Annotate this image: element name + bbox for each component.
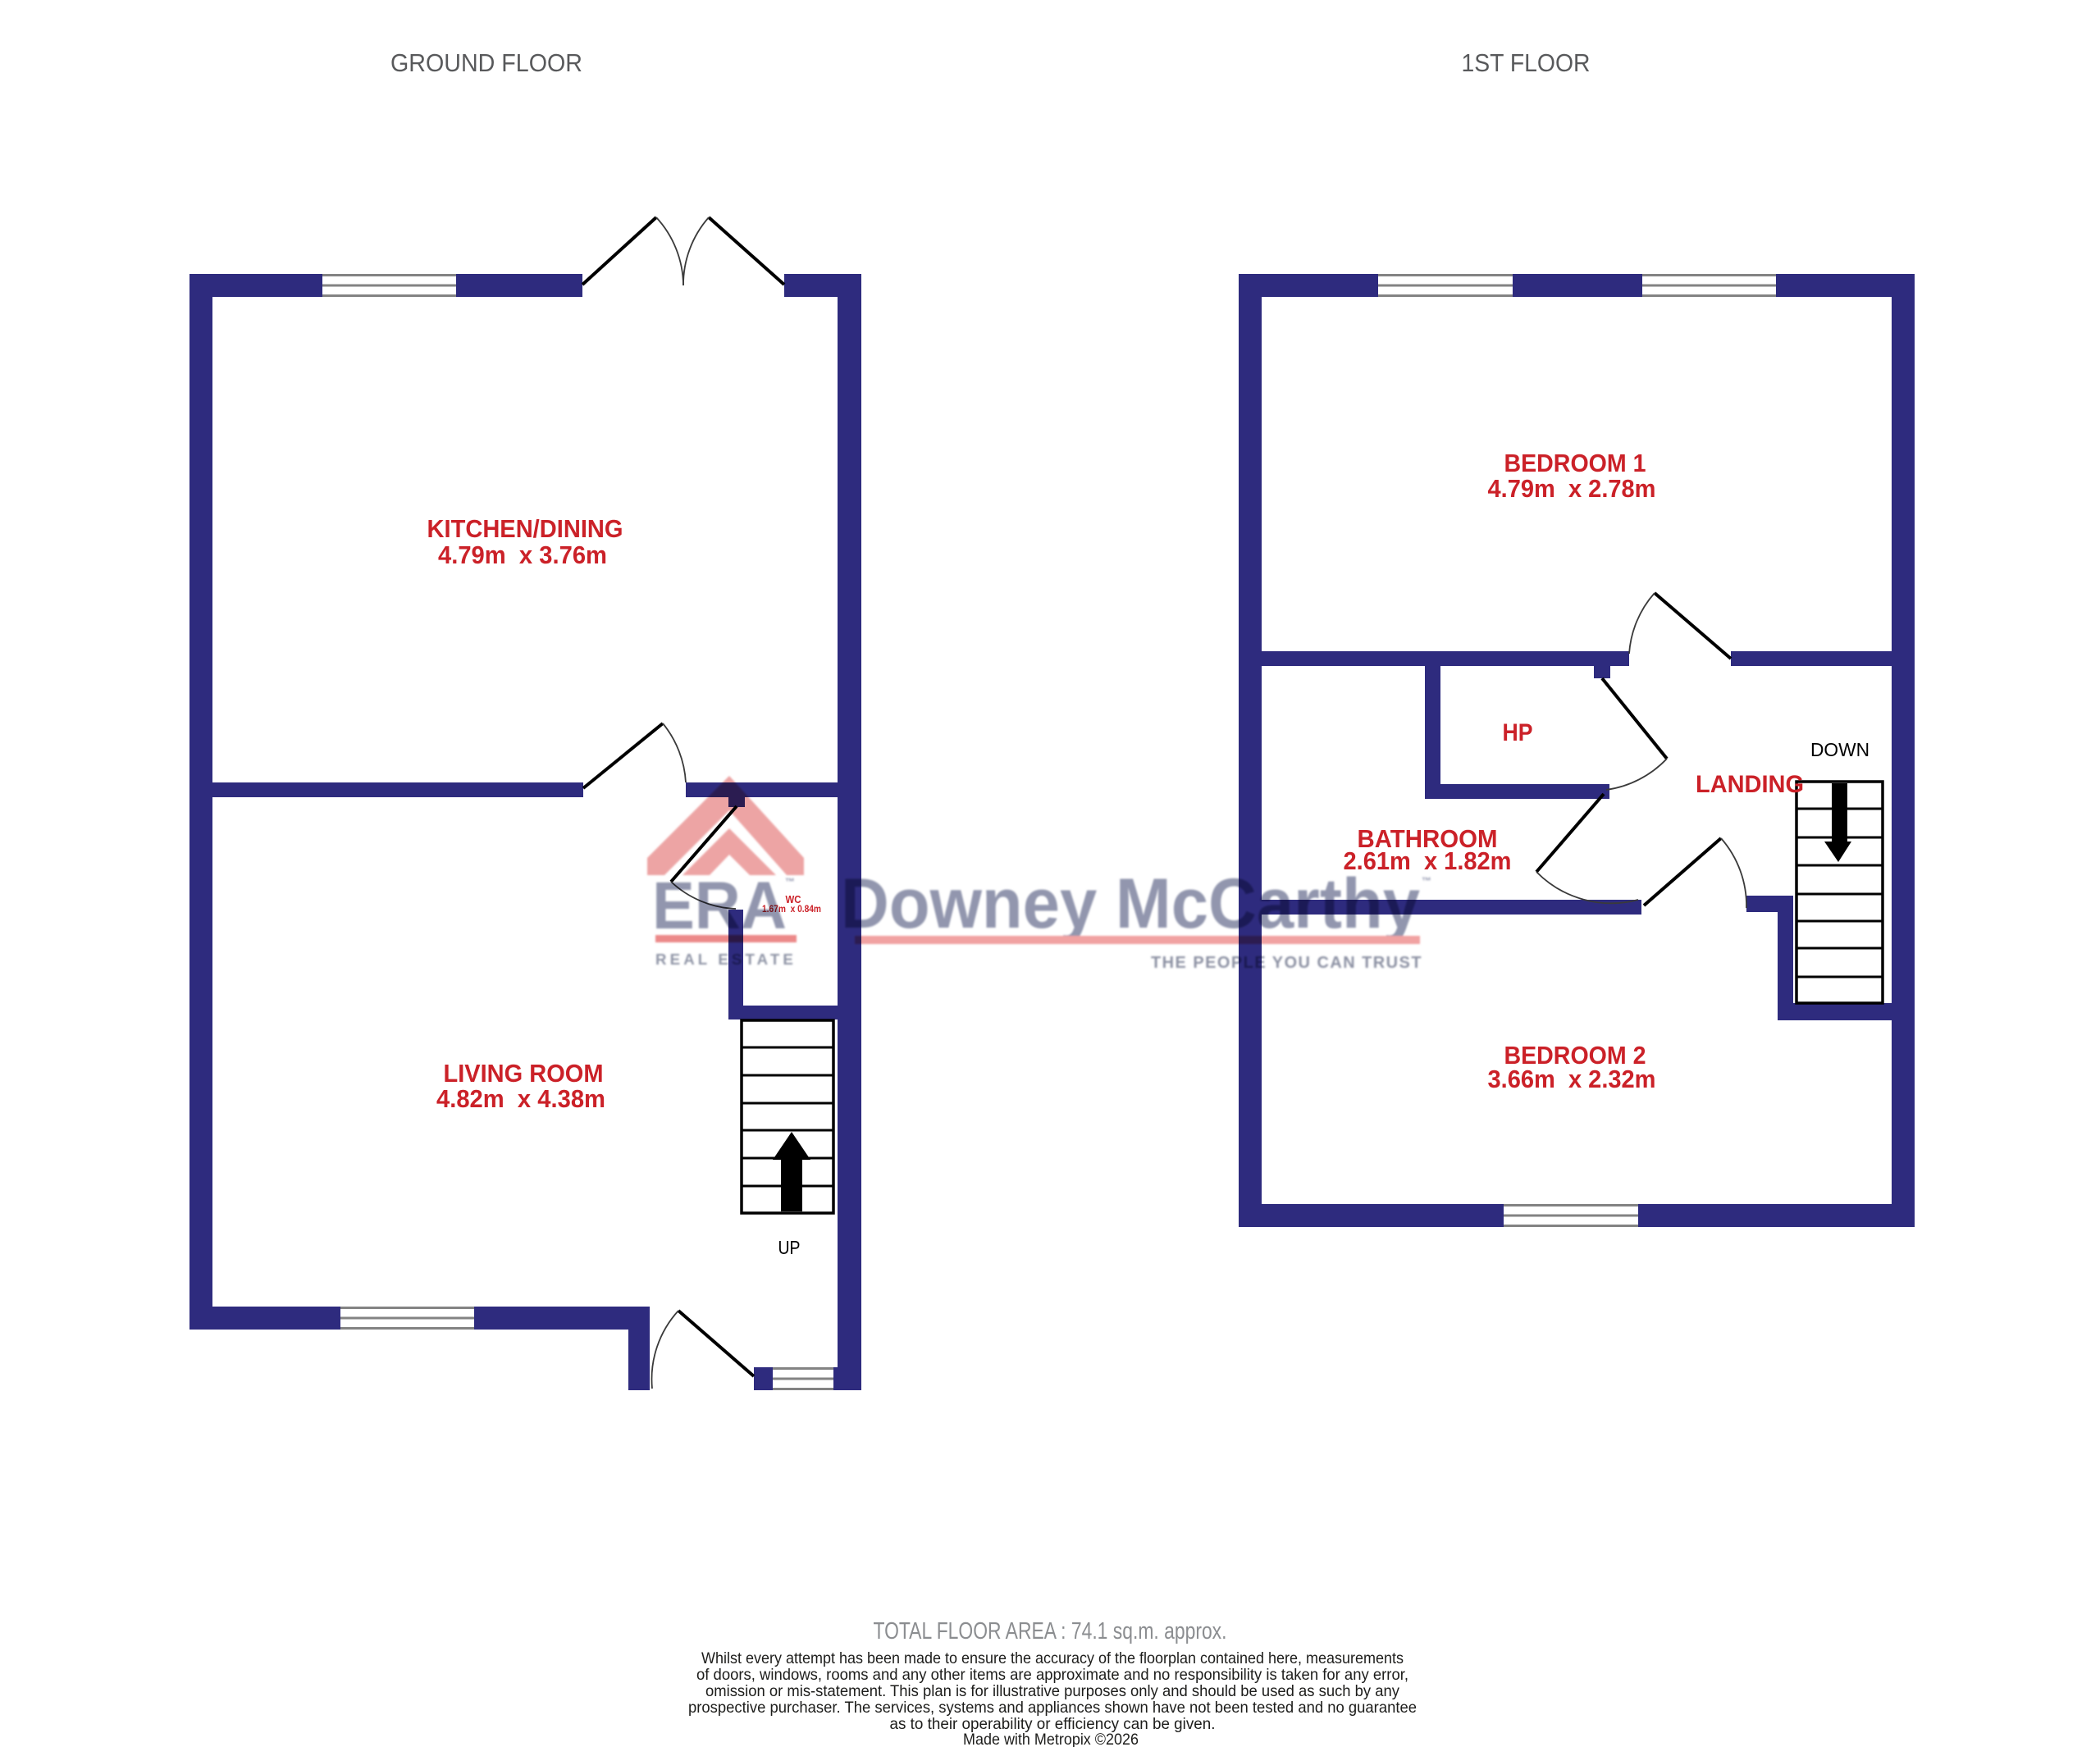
svg-text:4.82m x 4.38m: 4.82m x 4.38m bbox=[436, 1084, 605, 1113]
svg-text:4.79m x 2.78m: 4.79m x 2.78m bbox=[1488, 474, 1656, 503]
svg-text:Downey McCarthy: Downey McCarthy bbox=[841, 864, 1420, 943]
svg-text:of doors, windows, rooms and a: of doors, windows, rooms and any other i… bbox=[696, 1666, 1408, 1684]
svg-text:THE PEOPLE YOU CAN TRUST: THE PEOPLE YOU CAN TRUST bbox=[1151, 954, 1422, 972]
svg-text:LIVING ROOM: LIVING ROOM bbox=[444, 1059, 604, 1088]
svg-text:GROUND FLOOR: GROUND FLOOR bbox=[390, 48, 582, 77]
svg-text:DOWN: DOWN bbox=[1810, 739, 1869, 760]
svg-text:KITCHEN/DINING: KITCHEN/DINING bbox=[427, 514, 623, 543]
svg-text:TOTAL FLOOR AREA : 74.1 sq.m.: TOTAL FLOOR AREA : 74.1 sq.m. approx. bbox=[874, 1618, 1227, 1644]
svg-text:™: ™ bbox=[785, 876, 795, 887]
svg-text:REAL ESTATE: REAL ESTATE bbox=[655, 951, 797, 968]
svg-text:1ST FLOOR: 1ST FLOOR bbox=[1462, 48, 1591, 77]
svg-text:3.66m x 2.32m: 3.66m x 2.32m bbox=[1488, 1065, 1656, 1093]
svg-text:Whilst every attempt has been: Whilst every attempt has been made to en… bbox=[701, 1649, 1404, 1667]
svg-text:™: ™ bbox=[1422, 875, 1431, 887]
svg-text:Made with Metropix ©2026: Made with Metropix ©2026 bbox=[963, 1731, 1139, 1747]
svg-text:prospective purchaser. The ser: prospective purchaser. The services, sys… bbox=[688, 1699, 1417, 1717]
svg-text:ERA: ERA bbox=[652, 869, 787, 943]
svg-text:4.79m x 3.76m: 4.79m x 3.76m bbox=[438, 541, 607, 569]
svg-text:WC: WC bbox=[786, 893, 802, 905]
svg-text:HP: HP bbox=[1503, 719, 1533, 746]
svg-text:UP: UP bbox=[778, 1237, 801, 1258]
svg-text:LANDING: LANDING bbox=[1696, 771, 1804, 798]
svg-text:omission or mis-statement. Thi: omission or mis-statement. This plan is … bbox=[705, 1682, 1399, 1700]
svg-text:BEDROOM 1: BEDROOM 1 bbox=[1504, 449, 1646, 477]
